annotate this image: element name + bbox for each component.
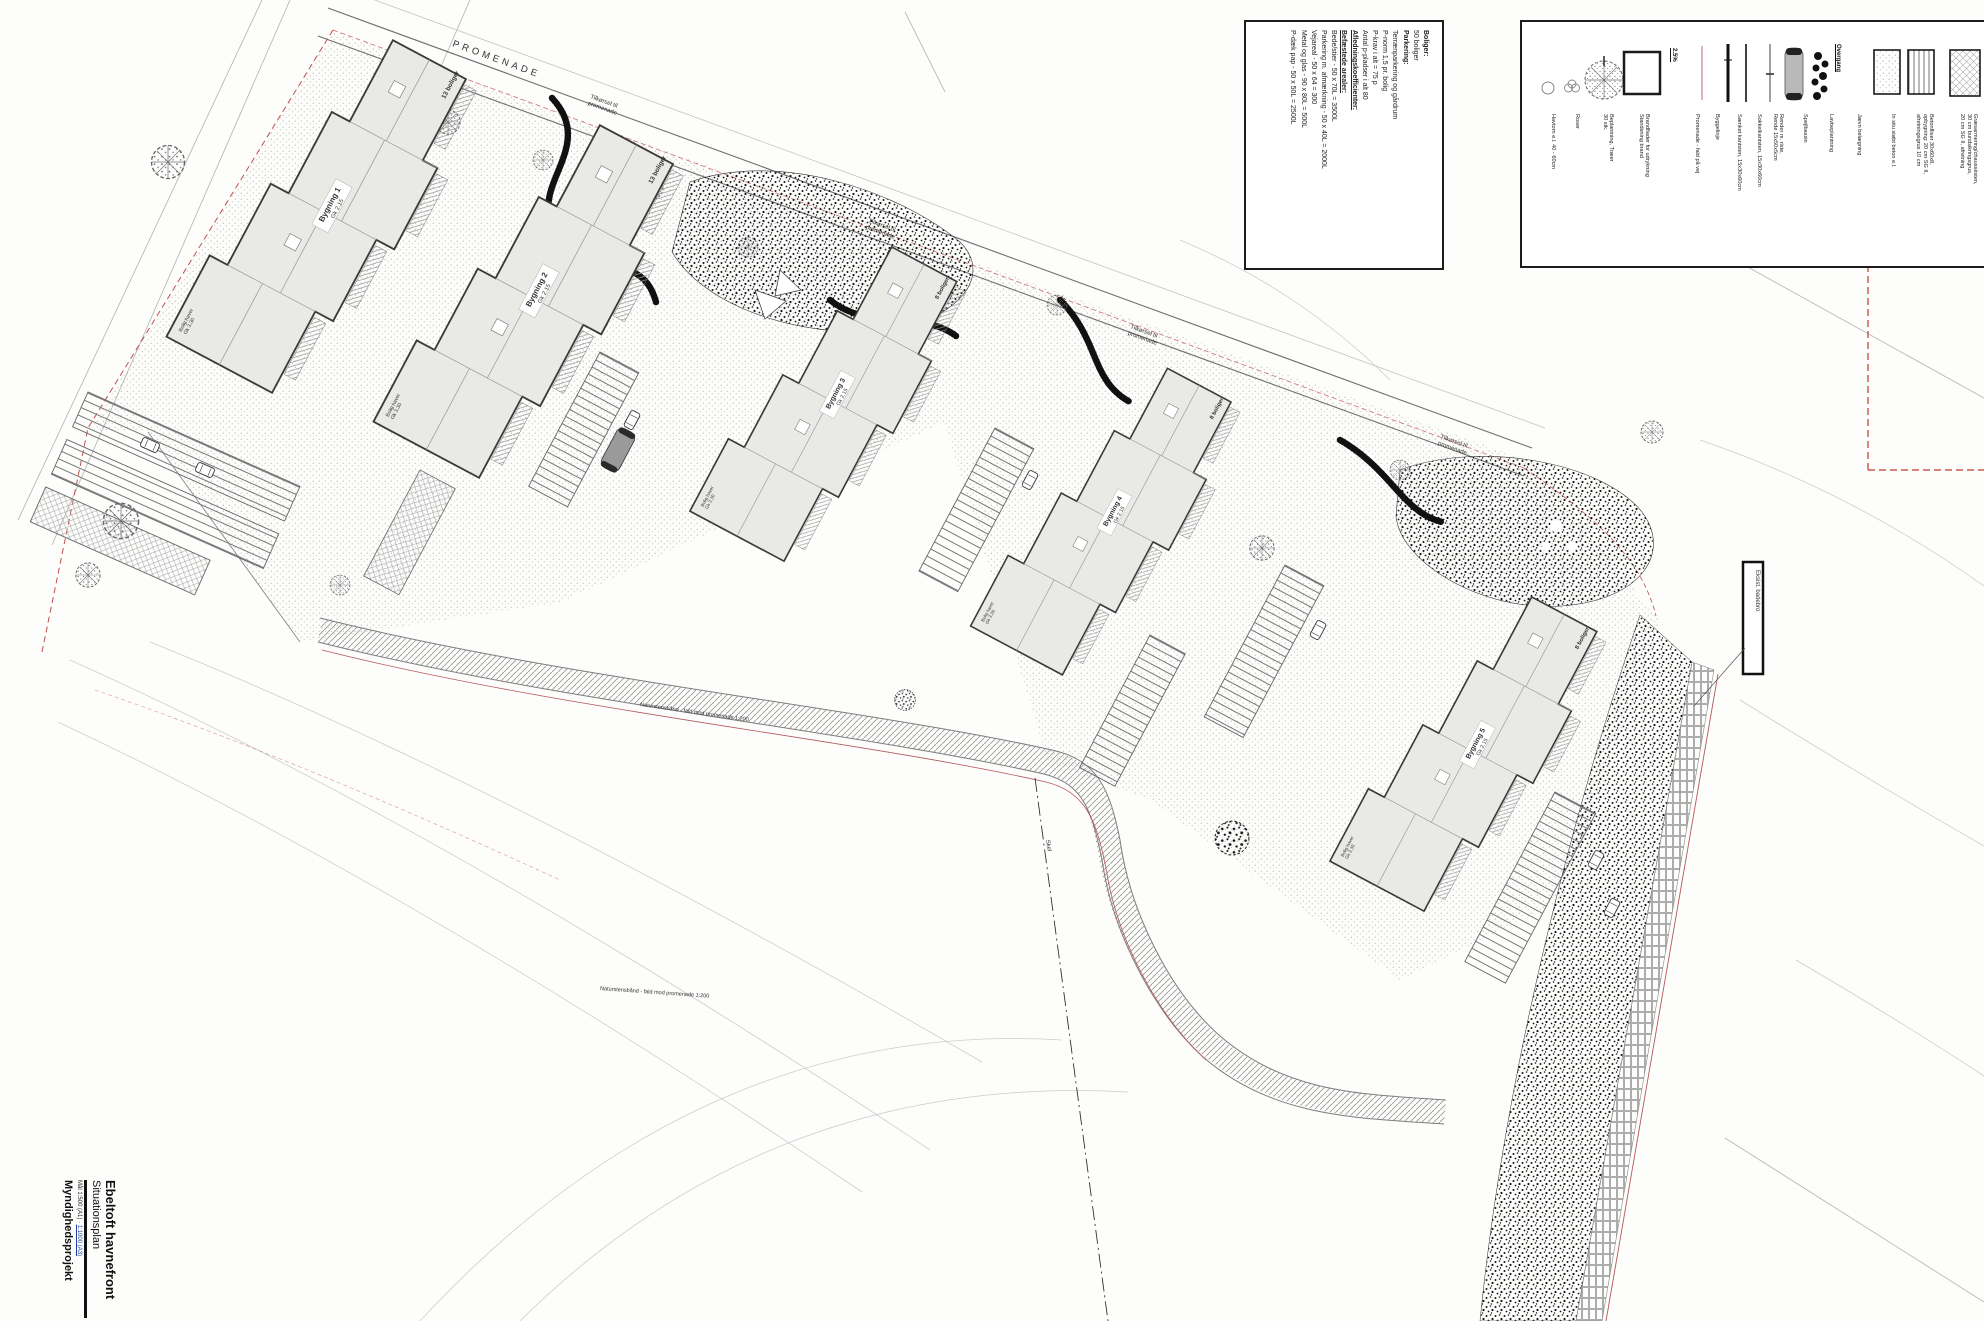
legend-label: Render m. riste, Rende 15x50x5cm: [1771, 114, 1784, 264]
skel-line: Skel Naturstensbånd - fald mod promenade…: [600, 701, 1108, 1321]
skel-label: Skel: [1044, 839, 1052, 851]
spejlbassin-icon: [1785, 48, 1803, 100]
legend-label: Lavbeplantning: [1828, 114, 1834, 264]
legend-icons: [1522, 30, 1982, 120]
drawing-title: Situationsplan: [90, 1180, 102, 1318]
info-line: 50 boliger: [1410, 30, 1420, 260]
drawing-meta-link: 1:1000 (A3): [76, 1225, 82, 1256]
brandflade-icon: [1624, 52, 1660, 94]
info-line: Metal og glas - 90 x 80L = 500L: [1297, 30, 1307, 260]
project-phase: Myndighedsprojekt: [62, 1180, 74, 1318]
drawing-meta: Mål 1:500 (A1) · 1:1000 (A3): [76, 1180, 82, 1318]
legend-label: Sokkelkantsten, 15x30x60cm: [1756, 114, 1762, 264]
info-line: Parkering:: [1399, 30, 1409, 260]
legend-label: Jævn belægning: [1856, 114, 1862, 264]
tree-icon: [1585, 56, 1623, 99]
beton-swatch: [1874, 50, 1900, 94]
title-block: Ebeltoft havnefront Situationsplan Mål 1…: [62, 1180, 118, 1318]
legend-label: Havtorn e.l. 40 - 60cm: [1550, 114, 1556, 264]
info-line: P-krav i alt = 75 p: [1369, 30, 1379, 260]
roser-icon: [1565, 80, 1580, 92]
info-line: Befæstede arealer:: [1338, 30, 1348, 260]
info-line: Afledningskoefficienter:: [1348, 30, 1358, 260]
legend-label: Beplantning, Træer 30 stk.: [1601, 114, 1614, 264]
title-divider: [84, 1180, 87, 1318]
havtorn-icon: [1542, 82, 1554, 94]
legend-label: Brandflader for udrykning Standsning bra…: [1637, 114, 1650, 264]
info-line: Parkering m. afmærkning - 50 x 40L = 200…: [1318, 30, 1328, 260]
legend-box: 2.5% Overgang Havtorn e.l. 40 - 60cm Ros…: [1520, 20, 1984, 268]
slope-icon: 2.5%: [1668, 48, 1686, 88]
info-line: Terrænparkering og gårdrum: [1389, 30, 1399, 260]
kantsten-thick-icon: [1724, 44, 1732, 102]
overgang-icon: Overgang: [1832, 44, 1850, 94]
project-title: Ebeltoft havnefront: [103, 1180, 118, 1318]
graesarmering-swatch: [1950, 50, 1980, 96]
info-line: Vejareal - 50 x 64 = 300: [1308, 30, 1318, 260]
info-line: Antal p-pladser i alt 80: [1359, 30, 1369, 260]
fliser-swatch: [1908, 50, 1934, 94]
legend-label: Græsarmering/chaussésten, 30 cm bundsikr…: [1959, 114, 1978, 264]
legend-label: Roser: [1574, 114, 1580, 264]
rende-icon: [1766, 44, 1774, 102]
info-line: P-dæk pap - 50 x 50L = 2500L: [1287, 30, 1297, 260]
legend-label: Betonfliser 30x60x8, opbygning: 20 cm SG…: [1915, 114, 1934, 264]
info-line: Bede/stier - 50 x 70L = 3500L: [1328, 30, 1338, 260]
siteplan-sheet: PROMENADE: [0, 0, 1984, 1321]
info-line: Boliger:: [1420, 30, 1430, 260]
info-box: Boliger: 50 boliger Parkering: Terrænpar…: [1244, 20, 1444, 270]
legend-label: Byggelinje: [1714, 114, 1720, 264]
legend-label: In situ støbt beton e.l.: [1890, 114, 1896, 264]
path-note: Naturstensbånd - fald mod promenade 1:20…: [600, 985, 710, 1000]
lavbeplantning-icon: [1812, 52, 1829, 100]
sign-label: Eksist. badebro: [1754, 570, 1760, 612]
legend-label: Promenade - fald på vej: [1694, 114, 1700, 264]
info-box-text: Boliger: 50 boliger Parkering: Terrænpar…: [1287, 30, 1430, 260]
legend-label: Spejlbassin: [1802, 114, 1808, 264]
legend-label: Sænket kantsten, 15x30x60cm: [1736, 114, 1742, 264]
info-line: P-norm 1,5 pr. bolig: [1379, 30, 1389, 260]
